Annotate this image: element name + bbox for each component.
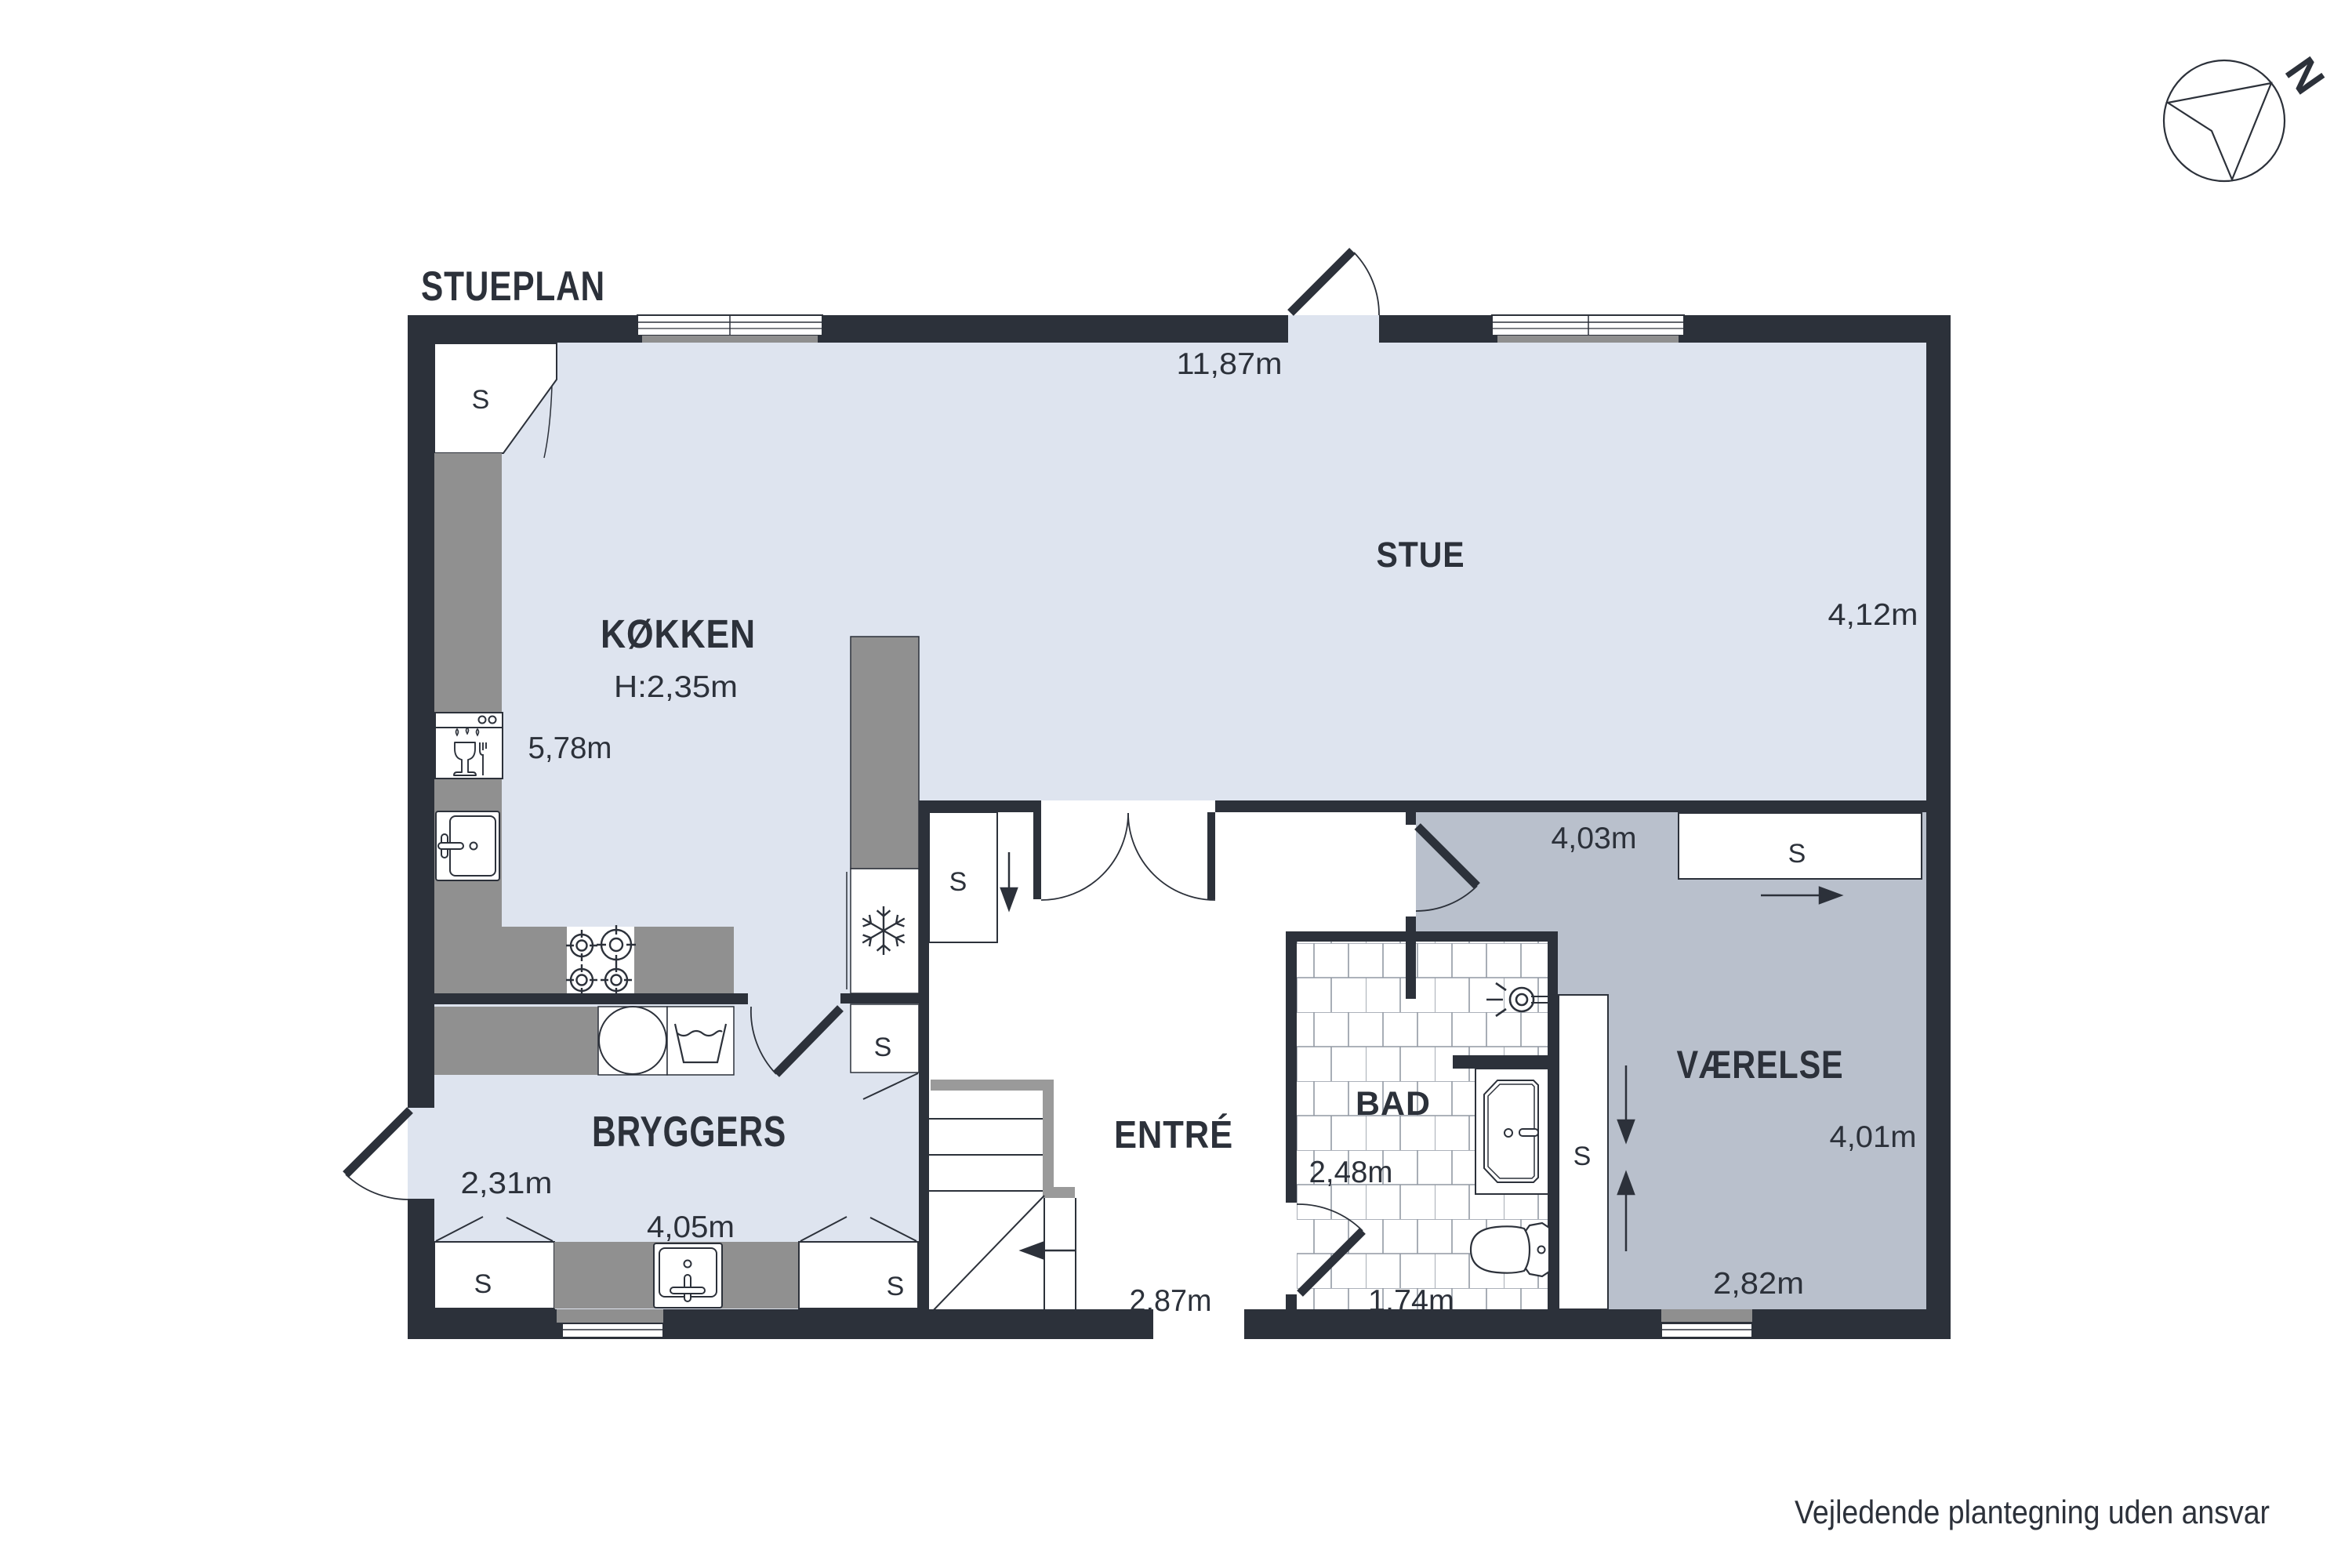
- svg-text:BAD: BAD: [1356, 1085, 1431, 1123]
- svg-text:Vejledende plantegning uden an: Vejledende plantegning uden ansvar: [1795, 1494, 2270, 1530]
- svg-text:2,48m: 2,48m: [1309, 1156, 1393, 1189]
- svg-text:4,05m: 4,05m: [647, 1210, 735, 1244]
- svg-text:KØKKEN: KØKKEN: [601, 612, 756, 656]
- svg-text:4,01m: 4,01m: [1830, 1120, 1917, 1154]
- svg-text:2,31m: 2,31m: [461, 1167, 553, 1200]
- svg-text:STUEPLAN: STUEPLAN: [421, 263, 605, 310]
- svg-text:2,82m: 2,82m: [1713, 1267, 1804, 1301]
- svg-text:1,74m: 1,74m: [1368, 1284, 1454, 1318]
- svg-text:S: S: [887, 1272, 905, 1301]
- svg-text:STUE: STUE: [1377, 535, 1465, 575]
- svg-text:S: S: [1788, 839, 1806, 869]
- svg-text:S: S: [1573, 1142, 1592, 1171]
- svg-text:VÆRELSE: VÆRELSE: [1677, 1043, 1844, 1087]
- svg-text:4,12m: 4,12m: [1828, 598, 1918, 632]
- svg-text:ENTRÉ: ENTRÉ: [1114, 1114, 1233, 1156]
- svg-text:S: S: [874, 1033, 892, 1062]
- svg-text:2,87m: 2,87m: [1130, 1284, 1212, 1318]
- svg-text:S: S: [472, 385, 490, 415]
- svg-text:H:2,35m: H:2,35m: [614, 670, 738, 704]
- svg-text:4,03m: 4,03m: [1552, 822, 1637, 855]
- svg-text:BRYGGERS: BRYGGERS: [592, 1107, 786, 1156]
- svg-text:S: S: [474, 1269, 492, 1299]
- svg-text:11,87m: 11,87m: [1177, 347, 1283, 381]
- svg-text:S: S: [949, 867, 967, 897]
- svg-text:5,78m: 5,78m: [528, 731, 612, 765]
